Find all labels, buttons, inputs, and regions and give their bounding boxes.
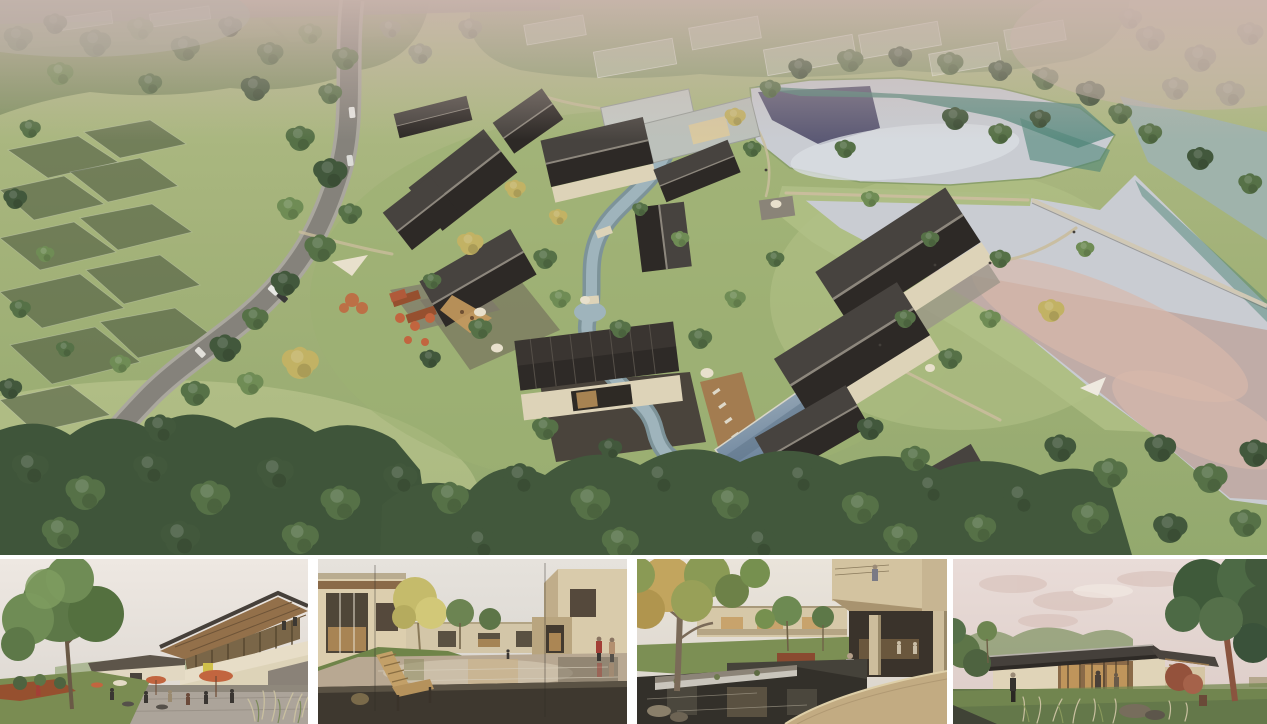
hero-aerial-view xyxy=(0,0,1267,555)
garden-waterfall-svg xyxy=(637,559,947,724)
reflecting-pond-svg xyxy=(318,559,627,724)
thumb-garden-waterfall xyxy=(637,559,947,724)
balcony-person xyxy=(872,565,878,581)
thumb-reflecting-pond xyxy=(318,559,627,724)
hero-aerial-svg xyxy=(0,0,1267,555)
lakeside-pavilion-svg xyxy=(953,559,1267,724)
thumb-plaza-cafe xyxy=(0,559,308,724)
haze xyxy=(0,0,1267,140)
thumb-lakeside-pavilion xyxy=(953,559,1267,724)
plaza-cafe-svg xyxy=(0,559,308,724)
rendering-board xyxy=(0,0,1267,724)
